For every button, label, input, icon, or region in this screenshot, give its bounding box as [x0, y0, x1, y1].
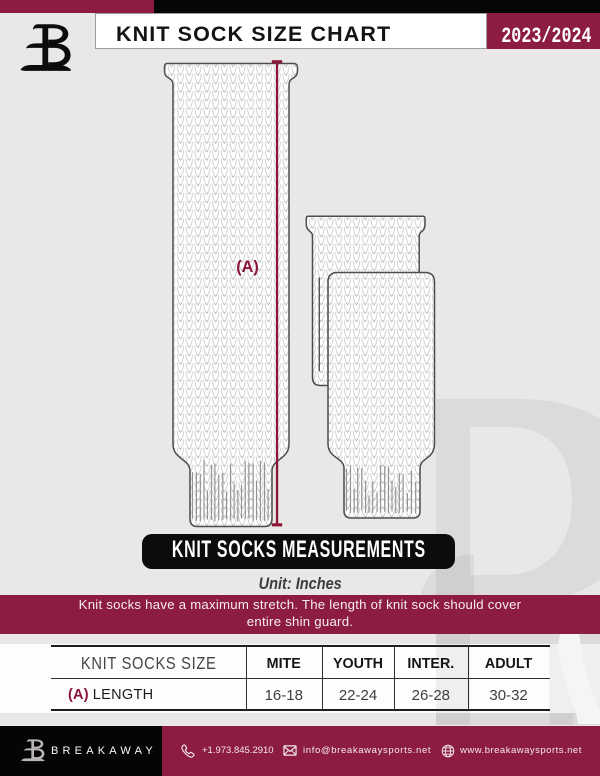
svg-text:(A): (A)	[236, 258, 258, 276]
